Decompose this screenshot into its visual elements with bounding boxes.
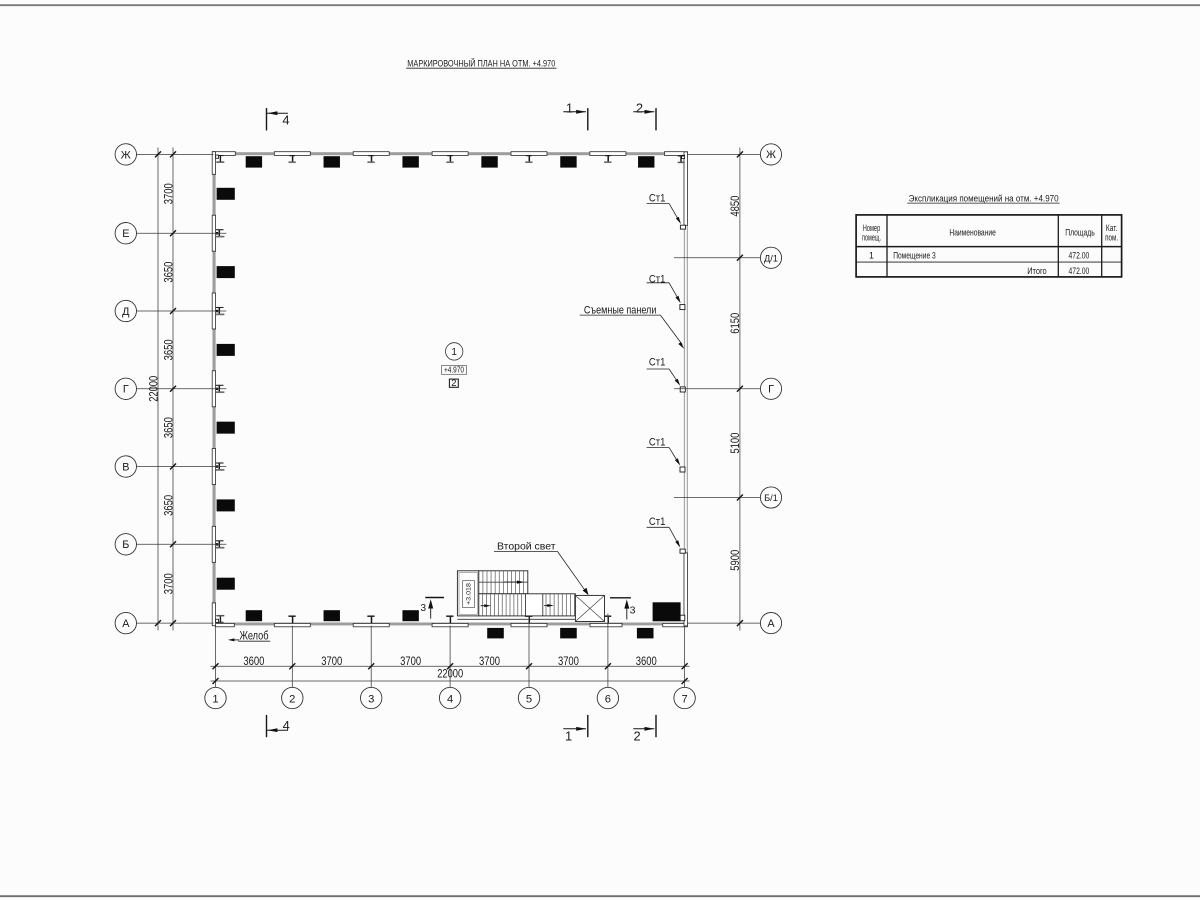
svg-text:2: 2 [451, 377, 456, 388]
svg-text:4: 4 [282, 113, 289, 128]
svg-text:Наименование: Наименование [949, 228, 996, 238]
svg-text:Ж: Ж [766, 149, 776, 161]
svg-text:3700: 3700 [321, 654, 342, 668]
svg-text:4: 4 [283, 718, 290, 733]
svg-text:3600: 3600 [636, 654, 657, 668]
svg-text:Второй свет: Второй свет [497, 541, 556, 552]
svg-text:2: 2 [634, 729, 641, 744]
svg-text:В: В [122, 461, 129, 473]
svg-text:3600: 3600 [243, 654, 264, 668]
svg-text:помещ.: помещ. [862, 233, 881, 243]
svg-text:Е: Е [122, 228, 129, 240]
svg-text:Ст1: Ст1 [649, 193, 666, 205]
svg-text:3650: 3650 [161, 417, 175, 438]
svg-text:пом.: пом. [1105, 233, 1118, 243]
svg-text:Г: Г [768, 384, 774, 396]
svg-text:Б/1: Б/1 [764, 493, 778, 503]
svg-text:1: 1 [565, 729, 572, 744]
svg-text:Ст1: Ст1 [649, 516, 666, 528]
svg-text:Д: Д [122, 306, 130, 318]
svg-text:+3.018: +3.018 [465, 583, 472, 605]
svg-text:3: 3 [368, 693, 374, 705]
svg-text:Помещение 3: Помещение 3 [893, 251, 936, 261]
svg-text:3700: 3700 [558, 654, 579, 668]
svg-text:3700: 3700 [400, 654, 421, 668]
svg-text:Ж: Ж [121, 149, 131, 161]
svg-text:Ст1: Ст1 [649, 357, 666, 369]
svg-text:2: 2 [289, 693, 295, 705]
svg-text:1: 1 [869, 251, 874, 261]
svg-text:3650: 3650 [161, 339, 175, 360]
svg-text:Кат.: Кат. [1106, 223, 1118, 233]
svg-text:3650: 3650 [161, 495, 175, 516]
svg-text:Ст1: Ст1 [649, 273, 666, 285]
svg-text:5: 5 [526, 693, 532, 705]
svg-text:3700: 3700 [161, 573, 175, 594]
svg-text:7: 7 [681, 693, 687, 705]
svg-text:3700: 3700 [479, 654, 500, 668]
svg-text:472.00: 472.00 [1069, 251, 1090, 261]
svg-text:6: 6 [605, 693, 611, 705]
svg-text:Г: Г [123, 384, 129, 396]
svg-text:Итого: Итого [1027, 266, 1047, 276]
svg-text:Б: Б [122, 539, 129, 551]
svg-text:Д/1: Д/1 [764, 254, 778, 264]
svg-text:3: 3 [421, 603, 427, 614]
svg-text:2: 2 [636, 101, 643, 116]
svg-text:5100: 5100 [728, 432, 742, 453]
svg-text:+4.970: +4.970 [444, 366, 464, 375]
svg-text:Желоб: Желоб [240, 629, 269, 643]
svg-text:А: А [767, 618, 775, 630]
svg-text:Ст1: Ст1 [649, 437, 666, 449]
svg-text:3700: 3700 [161, 183, 175, 204]
svg-text:1: 1 [566, 101, 573, 116]
svg-text:22000: 22000 [437, 667, 463, 681]
svg-text:472.00: 472.00 [1069, 266, 1090, 276]
svg-text:1: 1 [451, 347, 457, 358]
svg-text:3: 3 [630, 605, 636, 617]
svg-text:А: А [122, 618, 130, 630]
svg-text:4850: 4850 [728, 195, 742, 216]
svg-text:Номер: Номер [863, 223, 881, 233]
svg-text:22000: 22000 [146, 376, 160, 402]
svg-text:3650: 3650 [161, 261, 175, 282]
svg-text:1: 1 [212, 693, 218, 705]
svg-text:Площадь: Площадь [1065, 228, 1095, 238]
svg-text:4: 4 [447, 693, 453, 705]
svg-text:6150: 6150 [728, 313, 742, 334]
svg-text:5900: 5900 [728, 550, 742, 571]
